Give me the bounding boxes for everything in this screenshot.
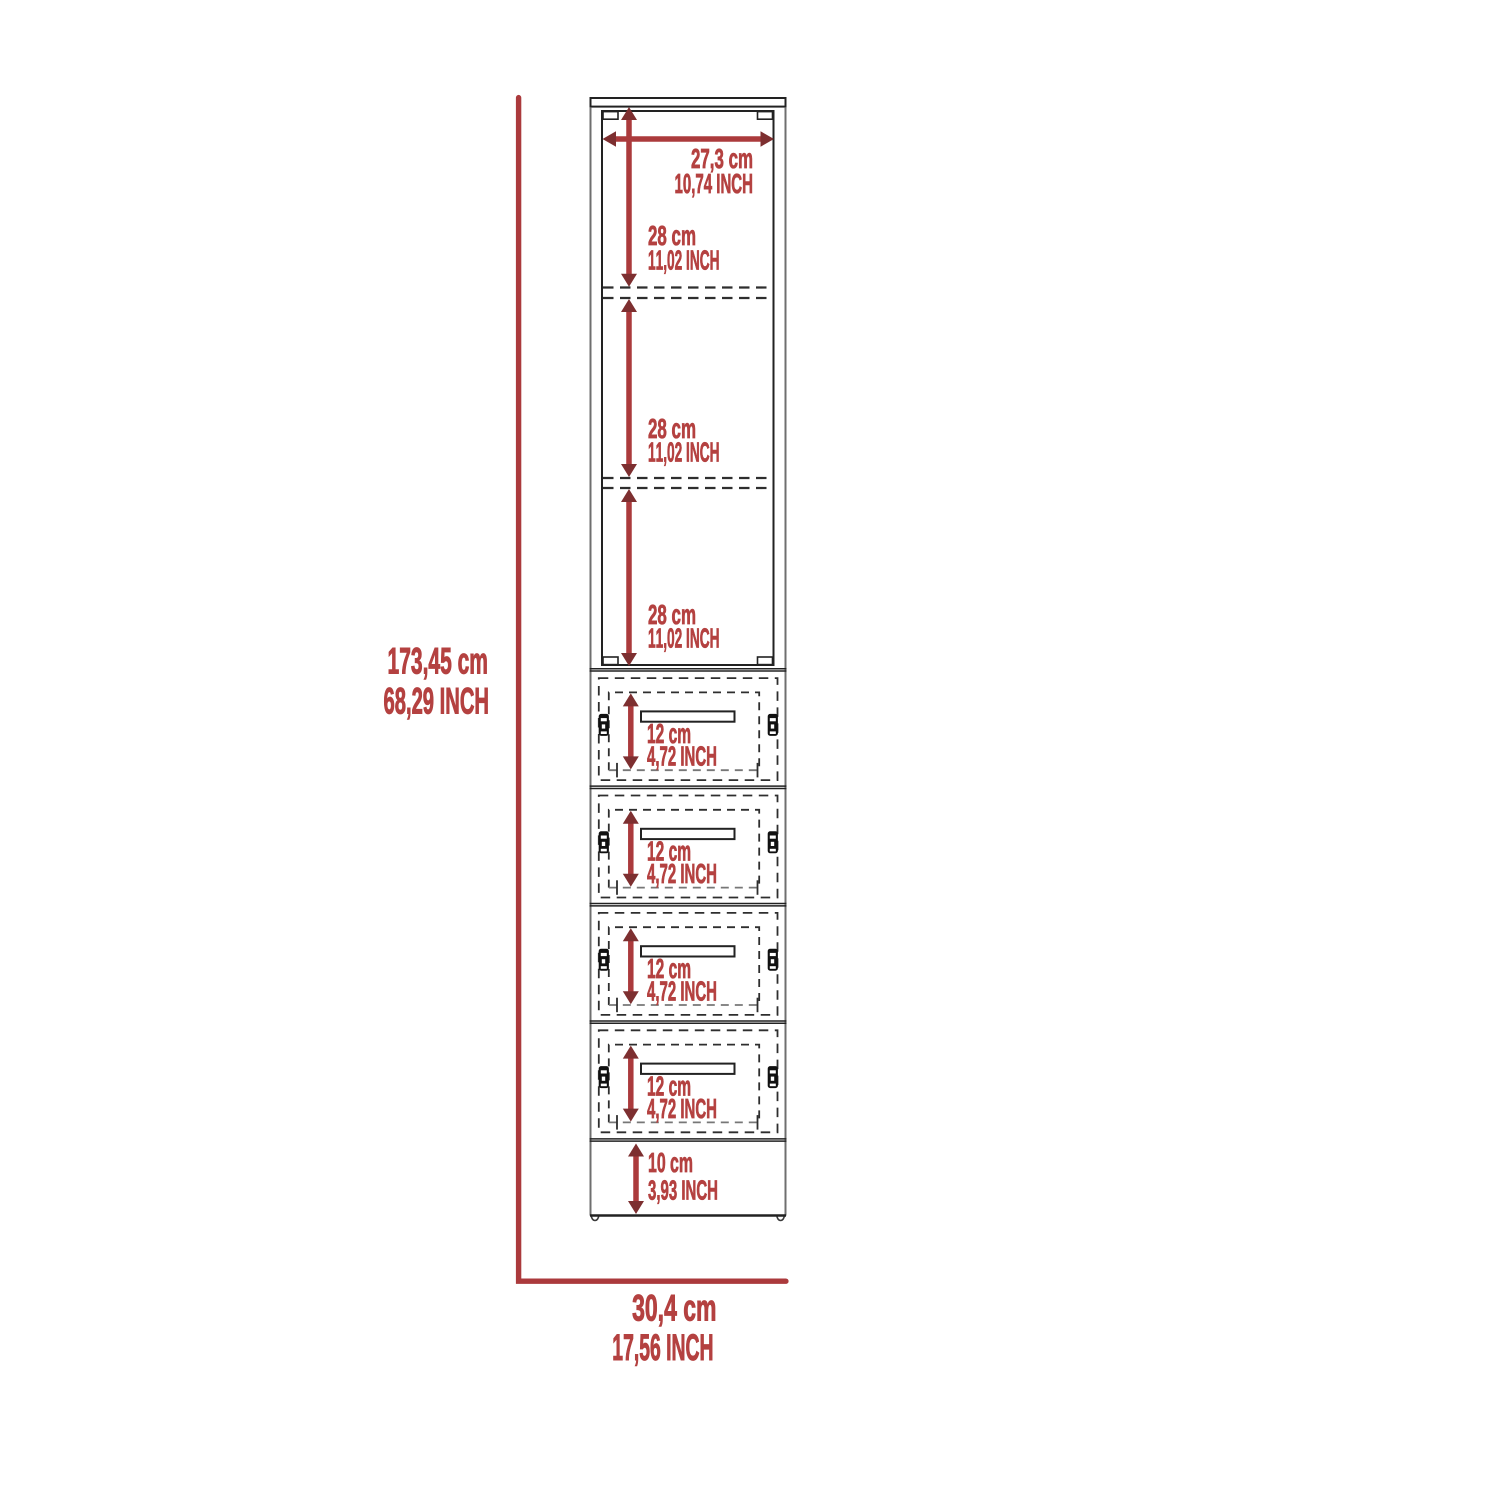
svg-text:3,93 INCH: 3,93 INCH xyxy=(648,1174,718,1205)
svg-text:4,72 INCH: 4,72 INCH xyxy=(647,1093,717,1124)
svg-text:11,02 INCH: 11,02 INCH xyxy=(648,622,720,653)
svg-text:17,56 INCH: 17,56 INCH xyxy=(612,1327,713,1368)
svg-text:10,74 INCH: 10,74 INCH xyxy=(675,168,754,199)
svg-text:4,72 INCH: 4,72 INCH xyxy=(647,975,717,1006)
svg-text:11,02 INCH: 11,02 INCH xyxy=(648,245,720,276)
svg-text:11,02 INCH: 11,02 INCH xyxy=(648,436,720,467)
svg-text:30,4 cm: 30,4 cm xyxy=(632,1288,716,1329)
svg-text:173,45 cm: 173,45 cm xyxy=(388,641,489,682)
svg-text:4,72 INCH: 4,72 INCH xyxy=(647,858,717,889)
svg-text:68,29 INCH: 68,29 INCH xyxy=(384,681,490,722)
svg-text:4,72 INCH: 4,72 INCH xyxy=(647,741,717,772)
